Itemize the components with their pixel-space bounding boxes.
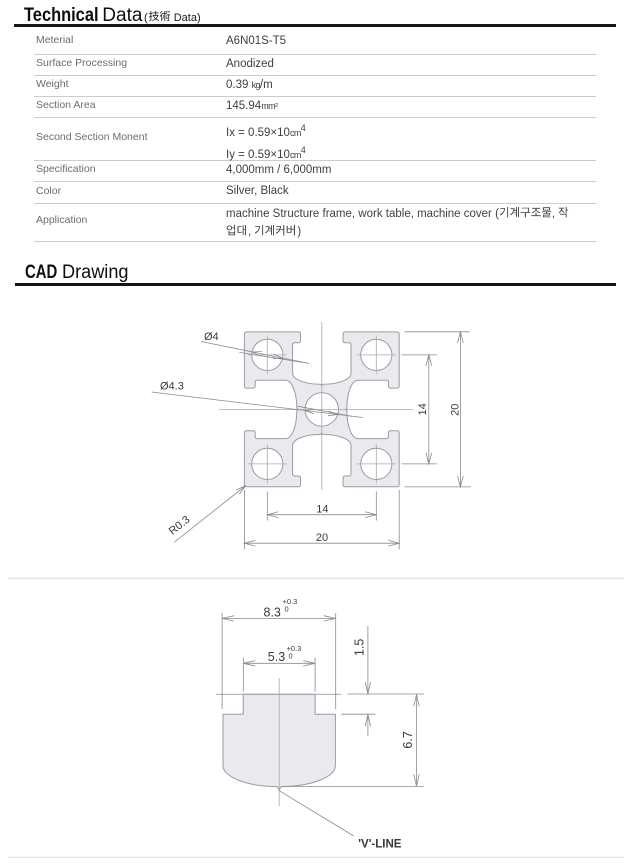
svg-text:0: 0: [285, 605, 289, 614]
svg-text:20: 20: [449, 404, 461, 416]
svg-text:5.3: 5.3: [268, 650, 285, 664]
svg-text:6.7: 6.7: [401, 731, 415, 748]
svg-text:'V'-LINE: 'V'-LINE: [358, 839, 401, 851]
svg-text:R0.3: R0.3: [167, 514, 193, 538]
svg-text:20: 20: [316, 532, 328, 544]
svg-text:0: 0: [289, 652, 293, 661]
svg-text:14: 14: [417, 403, 429, 415]
svg-text:Ø4: Ø4: [204, 331, 219, 343]
svg-text:1.5: 1.5: [352, 639, 366, 656]
svg-text:14: 14: [316, 504, 328, 516]
svg-text:Ø4.3: Ø4.3: [160, 381, 184, 393]
svg-text:8.3: 8.3: [264, 606, 281, 620]
